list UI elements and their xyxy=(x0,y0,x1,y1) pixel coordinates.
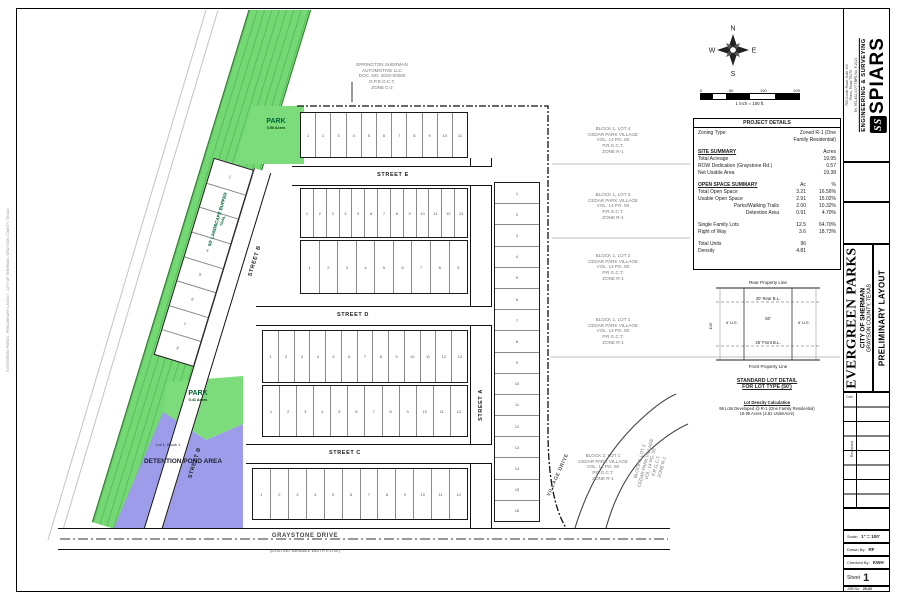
sheet-number: 1 xyxy=(863,572,869,584)
svg-text:105': 105' xyxy=(708,322,713,330)
lot-cell: 8 xyxy=(378,469,396,519)
lot-cell: 1 xyxy=(263,386,280,436)
lot-cell: 16 xyxy=(495,501,539,521)
lot-cell: 4 xyxy=(307,469,325,519)
firm-logo-block: 765 Custer Road, Suite 100Plano, Texas 7… xyxy=(843,8,890,162)
lot-cell: 8 xyxy=(383,386,400,436)
lot-cell: 11 xyxy=(495,395,539,416)
job-number-row: JOB No.20-02 xyxy=(843,586,890,592)
lot-cell: 6 xyxy=(394,241,413,293)
checked-by-row: Checked By:KWH xyxy=(843,556,890,569)
lot-cell: 11 xyxy=(421,331,437,382)
lot-block-row-street-c-north: 123456789101112 xyxy=(262,385,468,437)
table-row: Parks/Walking Trails2.0010.32% xyxy=(698,203,836,210)
lot-cell: 12 xyxy=(495,416,539,437)
lot-cell: 9 xyxy=(396,469,414,519)
street-d-label: STREET D xyxy=(318,312,388,318)
lot-cell: 6 xyxy=(343,469,361,519)
lot-block-row-street-e-south: 12345678910111213 xyxy=(300,188,468,238)
lot-cell: 9 xyxy=(389,331,405,382)
lot-cell: 2 xyxy=(495,204,539,225)
lot-cell: 6 xyxy=(342,331,358,382)
table-row: Detention Area0.914.70% xyxy=(698,210,836,217)
lot-cell: 3 xyxy=(297,386,314,436)
lot-block-row-street-c-south: 123456789101112 xyxy=(252,468,468,520)
lot-detail-diagram: Rear Property Line 20' Rear B.L. 5' U.E.… xyxy=(702,276,834,376)
graystone-road xyxy=(58,528,670,550)
lot-cell: 1 xyxy=(495,183,539,204)
drawn-by-row: Drawn By:RF xyxy=(843,543,890,556)
svg-text:Front Property Line: Front Property Line xyxy=(749,364,788,369)
lot-cell: 7 xyxy=(412,241,431,293)
street-c-label: STREET C xyxy=(310,450,380,456)
lot-block-row-north: 1234567891011 xyxy=(300,112,468,158)
lot-cell: 9 xyxy=(404,189,417,237)
lot-cell: 8 xyxy=(495,331,539,352)
plat-sheet: { "sheet": { "firm": { "name": "SPIARS",… xyxy=(0,0,900,600)
svg-text:25' Front B.L.: 25' Front B.L. xyxy=(755,340,780,345)
lot-cell: 4 xyxy=(314,386,331,436)
sheet-title: PRELIMINARY LAYOUT xyxy=(877,270,886,366)
tract-block1-lot3: BLOCK 1, LOT 3CEDAR PARK VILLAGEVOL. 14 … xyxy=(570,192,656,221)
site-summary-rows: Total Acreage19.95ROW Dedication (Grayst… xyxy=(698,156,836,177)
lot-cell: 8 xyxy=(373,331,389,382)
project-city: CITY OF SHERMAN xyxy=(860,246,867,390)
park-north-label: PARK 0.50 Acres xyxy=(254,118,298,130)
lot-cell: 3 xyxy=(289,469,307,519)
scale-bar: 050 100200 1 inch = 100 ft. xyxy=(700,88,800,106)
lot-cell: 3 xyxy=(495,225,539,246)
table-row: Net Usable Area19.38 xyxy=(698,170,836,177)
lot-cell: 5 xyxy=(495,268,539,289)
firm-tagline: ENGINEERING & SURVEYING xyxy=(859,38,867,132)
lot-cell: 3 xyxy=(295,331,311,382)
lot-cell: 6 xyxy=(377,113,392,157)
map-area: 1234567891011123456789101112131234567891… xyxy=(18,10,841,590)
lot-cell: 1 xyxy=(253,469,271,519)
plot-stamp: EVERGREEN PARKS - PRELIMINARY LAYOUT - C… xyxy=(6,135,10,445)
scale-caption: 1 inch = 100 ft. xyxy=(700,101,800,106)
firm-address: 765 Custer Road, Suite 100Plano, Texas 7… xyxy=(844,58,857,113)
graystone-drive-label: GRAYSTONE DRIVE xyxy=(240,533,370,539)
lot-cell: 2 xyxy=(279,331,295,382)
lot-cell: 8 xyxy=(431,241,450,293)
lot-cell: 9 xyxy=(423,113,438,157)
lot-cell: 12 xyxy=(436,331,452,382)
pond-lot-label: Lot 1, Block 1 xyxy=(156,442,200,447)
tract-automotive: ERRINGTON SHERMANAUTOMOTIVE LLCDOC. NO. … xyxy=(326,62,438,91)
lot-cell: 4 xyxy=(310,331,326,382)
firm-name: SS SPIARS xyxy=(867,37,889,133)
lot-cell: 9 xyxy=(400,386,417,436)
lot-cell: 4 xyxy=(357,241,376,293)
strip-blank-1 xyxy=(843,162,890,202)
compass-rose: N E S W xyxy=(704,18,762,80)
lot-cell: 5 xyxy=(331,386,348,436)
lot-block-col-east: 12345678910111213141516 xyxy=(494,182,540,522)
project-title-block: EVERGREEN PARKS CITY OF SHERMAN GRAYSON … xyxy=(843,244,873,392)
lot-cell: 13 xyxy=(455,189,467,237)
lot-cell: 1 xyxy=(301,241,320,293)
lot-cell: 7 xyxy=(358,331,374,382)
lot-cell: 10 xyxy=(495,374,539,395)
lot-density-note: Lot Density Calculation 96 Lots Develope… xyxy=(678,400,841,417)
table-row: Total Open Space3.2116.56% xyxy=(698,189,836,196)
sheet-number-row: Sheet 1 xyxy=(843,569,890,586)
tract-block1-lot4: BLOCK 1, LOT 4CEDAR PARK VILLAGEVOL. 14 … xyxy=(570,126,656,155)
lot-cell: 8 xyxy=(391,189,404,237)
project-details-title: PROJECT DETAILS xyxy=(694,119,840,128)
svg-text:20' Rear B.L.: 20' Rear B.L. xyxy=(756,296,780,301)
table-row: Total Units96 xyxy=(698,241,836,248)
lot-cell: 10 xyxy=(405,331,421,382)
project-details-panel: PROJECT DETAILS Zoning Type:Zoned R-1 (O… xyxy=(693,118,841,270)
lot-cell: 7 xyxy=(378,189,391,237)
lot-cell: 6 xyxy=(365,189,378,237)
lot-cell: 1 xyxy=(301,113,316,157)
lot-cell: 2 xyxy=(320,241,339,293)
lot-cell: 3 xyxy=(327,189,340,237)
lot-block-row-street-d-north: 123456789 xyxy=(300,240,468,294)
lot-cell: 7 xyxy=(365,386,382,436)
table-row: Total Acreage19.95 xyxy=(698,156,836,163)
lot-cell: 5 xyxy=(326,331,342,382)
lot-cell: 4 xyxy=(495,247,539,268)
street-a-label: STREET A xyxy=(478,370,484,440)
svg-text:E: E xyxy=(752,48,757,55)
sheet-title-block: PRELIMINARY LAYOUT xyxy=(873,244,890,392)
lot-cell: 6 xyxy=(495,289,539,310)
lot-cell: 10 xyxy=(417,189,430,237)
table-row: Right of Way3.618.73% xyxy=(698,229,836,236)
lot-cell: 5 xyxy=(352,189,365,237)
street-a-road xyxy=(470,158,492,530)
park-south-label: PARK 0.41 Acres xyxy=(176,390,220,402)
lot-cell: 5 xyxy=(362,113,377,157)
graystone-row-note: (EXISTING VARIABLE WIDTH R.O.W.) xyxy=(230,548,380,553)
lot-cell: 2 xyxy=(314,189,327,237)
lot-cell: 13 xyxy=(452,331,467,382)
table-row: Single Family Lots12.564.70% xyxy=(698,222,836,229)
tract-block1-lot2: BLOCK 1, LOT 2CEDAR PARK VILLAGEVOL. 14 … xyxy=(570,253,656,282)
lot-cell: 7 xyxy=(495,310,539,331)
lot-cell: 11 xyxy=(429,189,442,237)
lot-cell: 4 xyxy=(347,113,362,157)
revisions-block: Date Revisions xyxy=(843,392,890,508)
table-row: Density4.81 xyxy=(698,248,836,255)
tract-block1-lot1: BLOCK 1, LOT 1CEDAR PARK VILLAGEVOL. 14 … xyxy=(570,317,656,346)
svg-text:W: W xyxy=(709,48,716,55)
scale-row: Scale:1" = 100' xyxy=(843,530,890,543)
lot-cell: 15 xyxy=(495,480,539,501)
project-name: EVERGREEN PARKS xyxy=(844,246,860,390)
lot-cell: 13 xyxy=(495,437,539,458)
lot-cell: 9 xyxy=(495,353,539,374)
svg-text:N: N xyxy=(730,26,735,33)
lot-cell: 7 xyxy=(392,113,407,157)
lot-cell: 3 xyxy=(338,241,357,293)
lot-cell: 3 xyxy=(331,113,346,157)
lot-cell: 7 xyxy=(361,469,379,519)
open-space-rows: Total Open Space3.2116.56%Usable Open Sp… xyxy=(698,189,836,255)
revisions-label: Revisions xyxy=(850,429,854,469)
lot-cell: 11 xyxy=(434,386,451,436)
svg-text:Rear Property Line: Rear Property Line xyxy=(749,280,787,285)
svg-text:S: S xyxy=(731,71,736,78)
lot-block-row-street-d-south: 12345678910111213 xyxy=(262,330,468,383)
lot-cell: 1 xyxy=(301,189,314,237)
lot-cell: 2 xyxy=(271,469,289,519)
street-e-label: STREET E xyxy=(358,172,428,178)
svg-text:5' U.E.: 5' U.E. xyxy=(798,320,810,325)
info-blank-row xyxy=(843,508,890,530)
lot-cell: 5 xyxy=(325,469,343,519)
lot-cell: 12 xyxy=(450,469,467,519)
lot-cell: 6 xyxy=(348,386,365,436)
lot-cell: 10 xyxy=(417,386,434,436)
strip-blank-2 xyxy=(843,202,890,244)
spiars-logo-icon: SS xyxy=(869,116,886,133)
lot-cell: 11 xyxy=(453,113,467,157)
lot-cell: 2 xyxy=(316,113,331,157)
lot-cell: 9 xyxy=(450,241,468,293)
lot-cell: 12 xyxy=(442,189,455,237)
lot-cell: 2 xyxy=(280,386,297,436)
svg-text:5' U.E.: 5' U.E. xyxy=(726,320,738,325)
lot-cell: 10 xyxy=(414,469,432,519)
table-row: Usable Open Space2.9115.02% xyxy=(698,196,836,203)
project-county: GRAYSON COUNTY, TEXAS xyxy=(867,246,873,390)
lot-cell: 5 xyxy=(375,241,394,293)
table-row: ROW Dedication (Graystone Rd.)0.57 xyxy=(698,163,836,170)
lot-cell: 10 xyxy=(438,113,453,157)
lot-cell: 12 xyxy=(451,386,467,436)
revisions-date-label: Date xyxy=(846,395,853,399)
svg-text:50': 50' xyxy=(765,316,771,321)
lot-cell: 1 xyxy=(263,331,279,382)
lot-cell: 8 xyxy=(407,113,422,157)
pond-label: DETENTION POND AREA xyxy=(128,458,238,465)
lot-detail-caption: STANDARD LOT DETAIL FOR LOT TYPE (50') xyxy=(692,378,841,390)
lot-cell: 14 xyxy=(495,458,539,479)
lot-cell: 4 xyxy=(340,189,353,237)
lot-cell: 11 xyxy=(432,469,450,519)
